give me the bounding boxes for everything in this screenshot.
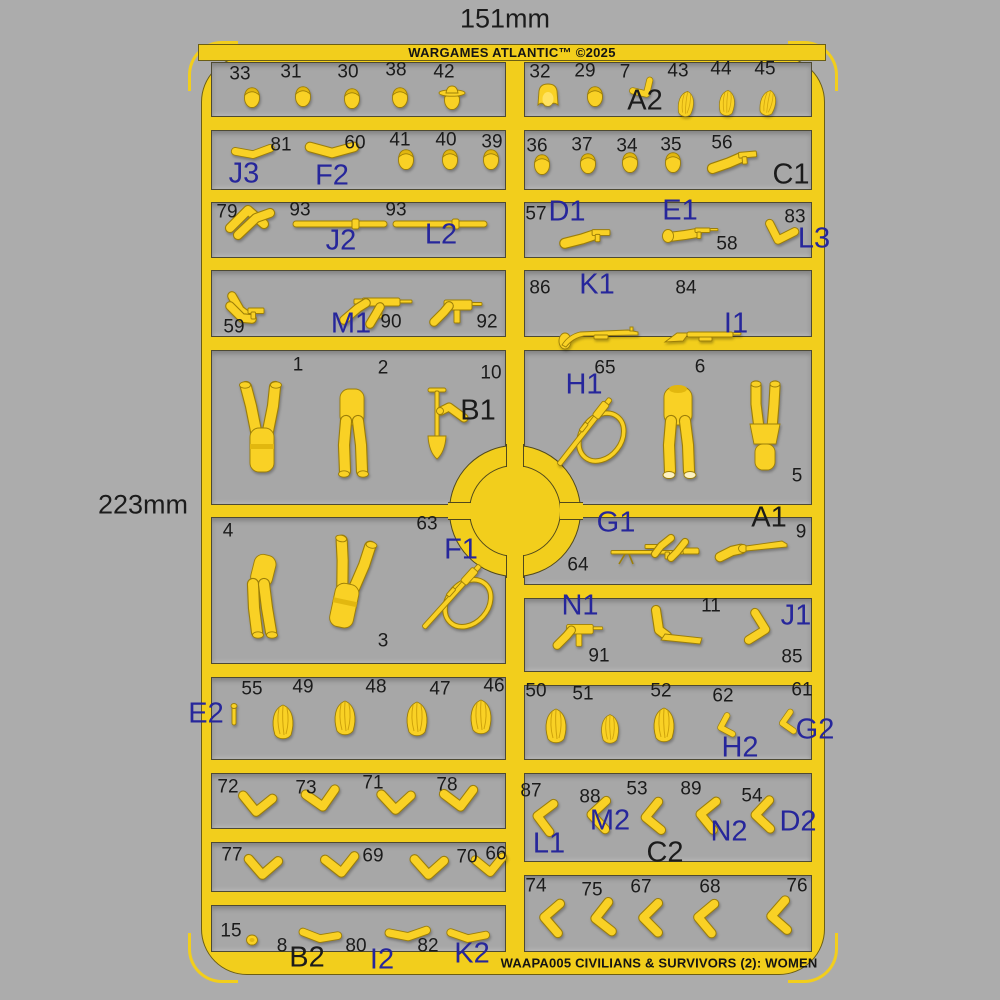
sprue-part-bh [663, 385, 696, 479]
sprue-part-h [623, 153, 638, 173]
sprue-part-h [588, 87, 603, 107]
sprue-part-hr [758, 89, 778, 117]
sprue-part-uz [557, 624, 603, 646]
sprue-part-as [389, 930, 427, 938]
sprue-product-photo: 151mm 223mm WARGAMES ATLANTIC™ ©2025 333… [0, 0, 1000, 1000]
sprue-part-ab [306, 789, 337, 808]
sprue-part-bu [240, 382, 282, 472]
sprue-part-sh [428, 388, 464, 459]
sprue-part-sg [665, 332, 741, 342]
parts-layer [0, 0, 1000, 1000]
sprue-part-as [235, 148, 270, 156]
sprue-part-hhair [538, 84, 558, 106]
sprue-part-as [310, 147, 354, 153]
sprue-part-hhat [439, 86, 465, 110]
sprue-part-pg [565, 230, 610, 244]
sprue-part-bs [339, 389, 369, 477]
sprue-part-kn [247, 935, 258, 945]
sprue-part-ab [543, 902, 561, 933]
sprue-part-h [393, 88, 408, 108]
sprue-part-ab [413, 858, 444, 876]
sprue-part-hr [471, 700, 491, 734]
sprue-part-sr [554, 395, 639, 487]
product-title-text: WAAPA005 CIVILIANS & SURVIVORS (2): WOME… [501, 956, 818, 971]
sprue-part-hr [602, 715, 619, 744]
sprue-part-h [245, 88, 260, 108]
sprue-part-hr [407, 702, 427, 736]
sprue-part-st [231, 704, 237, 726]
sprue-part-hr [718, 90, 735, 117]
sprue-part-h [581, 154, 596, 174]
sprue-part-ab [535, 801, 554, 832]
sprue-part-hr [273, 705, 293, 739]
sprue-part-as [450, 933, 485, 940]
sprue-part-ab [645, 802, 662, 831]
sprue-part-ab [771, 900, 787, 930]
sprue-part-rf [559, 327, 638, 349]
sprue-part-ab [444, 790, 475, 808]
sprue-part-ab [594, 902, 612, 933]
sprue-part-ab [748, 613, 769, 644]
sprue-part-hr [546, 709, 566, 743]
sprue-part-bt [720, 541, 787, 557]
sprue-part-hr [677, 90, 695, 117]
sprue-part-ab [241, 795, 272, 814]
sprue-part-ab [325, 856, 356, 874]
sprue-part-rv [663, 228, 719, 243]
sprue-part-rd [393, 219, 487, 229]
sprue-part-h [399, 150, 414, 170]
sprue-part-ab [247, 858, 278, 876]
sprue-part-h [535, 155, 550, 175]
sprue-part-bu [318, 534, 378, 631]
sprue-part-mc [656, 610, 702, 644]
sprue-part-ab [590, 800, 607, 829]
sprue-part-ab [698, 800, 717, 830]
sprue-part-h [484, 150, 499, 170]
sprue-part-bl [249, 552, 278, 638]
sprue-part-h [345, 89, 360, 109]
sprue-part-hr [335, 701, 355, 735]
sprue-part-hr [654, 708, 674, 742]
sprue-part-as [302, 932, 338, 940]
sprue-part-sm [344, 298, 412, 324]
sprue-part-ab [380, 794, 410, 811]
sprue-part-ab [781, 712, 793, 732]
sprue-part-bk [750, 381, 780, 470]
sprue-part-sc [611, 538, 699, 564]
sprue-part-ab [643, 903, 659, 933]
sprue-part-ab [696, 902, 715, 933]
sprue-part-h [443, 150, 458, 170]
sprue-part-uz [434, 300, 482, 323]
sprue-part-ab [475, 857, 503, 873]
brand-copyright-text: WARGAMES ATLANTIC™ ©2025 [408, 45, 615, 60]
sprue-part-ab [755, 800, 770, 829]
sprue-part-pp [230, 296, 264, 319]
sprue-part-h [666, 153, 681, 173]
sprue-part-rd [293, 219, 387, 229]
sprue-part-pg [711, 151, 757, 169]
sprue-part-h [296, 87, 311, 107]
sprue-part-ap [230, 210, 270, 235]
sprue-part-ab [718, 715, 733, 736]
sprue-part-sr [419, 562, 506, 653]
sprue-top-runner: WARGAMES ATLANTIC™ ©2025 [198, 44, 826, 61]
sprue-part-ab [765, 223, 794, 245]
sprue-part-ab [632, 80, 655, 99]
